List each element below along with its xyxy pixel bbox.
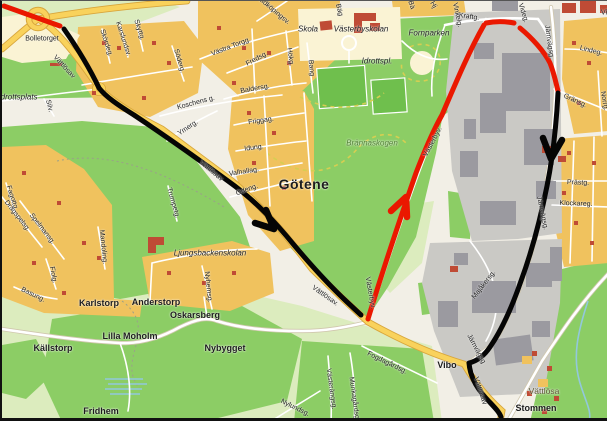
place-label-bolletorget: Bolletorget bbox=[25, 36, 58, 43]
street-label-nylundsg: Nylundsg. bbox=[279, 398, 310, 418]
street-label-vasterangsg: Västerängsg. bbox=[325, 368, 338, 410]
poi-label-ljungsbackenskolan: Ljungsbackenskolan bbox=[174, 249, 247, 258]
street-label-silv: Silv. bbox=[44, 99, 54, 113]
street-label-fredsg: Fredsg. bbox=[245, 50, 269, 67]
street-label-bang: Bang bbox=[307, 59, 316, 76]
place-label-karlstorp: Karlstorp bbox=[79, 298, 119, 308]
street-label-lidkopingsv: Lidköpingsv. bbox=[257, 0, 291, 26]
map-canvas[interactable]: Götene Bolletorget Karlstorp Anderstorp … bbox=[0, 0, 607, 421]
street-label-karslundsv: Karslundsv. bbox=[114, 21, 132, 57]
poi-label-idrottspl: Idrottspl. bbox=[362, 57, 393, 66]
street-label-idung: Idung. bbox=[244, 143, 264, 152]
street-label-basung: Basung. bbox=[20, 286, 46, 304]
place-label-gotene: Götene bbox=[279, 176, 330, 192]
poi-label-brannaskogen: Brännaskogen bbox=[346, 139, 398, 148]
street-label-vasterbyv-2: Västerbyv. bbox=[364, 276, 377, 309]
street-label-odeng: Odeng. bbox=[235, 183, 259, 197]
street-label-majakersg: Majåkersg. bbox=[471, 269, 498, 300]
place-label-fridhem: Fridhem bbox=[83, 406, 119, 416]
street-label-vattlosav-3: Vättlösav. bbox=[311, 284, 340, 307]
street-label-hokg: Hökg. bbox=[285, 47, 294, 66]
street-label-spelmansg: Spelmansg. bbox=[28, 212, 56, 245]
street-label-nyhemsg: Nyhemsg. bbox=[203, 271, 213, 303]
street-label-valhallag: Valhallag. bbox=[229, 166, 260, 178]
place-label-anderstorp: Anderstorp bbox=[132, 297, 181, 307]
poi-label-vasterbyskolan: Västerbyskolan bbox=[334, 25, 389, 34]
street-label-partial-bag: Bäg bbox=[334, 3, 344, 17]
place-label-lilla-moholm: Lilla Moholm bbox=[103, 331, 158, 341]
place-label-stommen: Stommen bbox=[515, 403, 556, 413]
street-label-friggag: Friggag. bbox=[248, 116, 274, 127]
street-label-vattlosav-2: Vättlösav bbox=[198, 159, 225, 183]
street-label-gransg: Gränsg. bbox=[562, 93, 588, 110]
street-label-norrg: Norrg. bbox=[599, 91, 607, 111]
street-label-jarnvagsg-2: Järnvägsg. bbox=[535, 196, 549, 231]
street-label-skordeg: Skördeg. bbox=[98, 29, 113, 58]
street-label-videg: Videg. bbox=[517, 3, 530, 24]
street-label-soderg: Söderg. bbox=[172, 48, 185, 74]
place-label-vattlosa: Vättlösa bbox=[529, 386, 560, 396]
street-label-prastg: Prästg. bbox=[567, 179, 589, 187]
street-label-jarnvagsg-1: Järnvägsg. bbox=[543, 25, 555, 60]
street-label-partial-ba: Bä bbox=[406, 0, 415, 10]
poi-label-skola: Skola bbox=[298, 25, 318, 34]
street-label-vasterbyv-1: Västerbyv. bbox=[422, 126, 443, 158]
place-label-vibo: Vibo bbox=[437, 360, 456, 370]
street-label-fiolg: Fiolg. bbox=[48, 266, 58, 284]
street-label-jarnvagsg-3: Järnvägsg bbox=[465, 333, 486, 365]
street-label-ymerg: Ymerg. bbox=[177, 119, 200, 137]
street-label-vattlosav-1: Vättlösav bbox=[52, 54, 77, 80]
street-label-koschens-g: Koschens g. bbox=[176, 95, 215, 112]
place-label-oskarsberg: Oskarsberg bbox=[170, 310, 220, 320]
street-label-partial-hj: Hj bbox=[428, 0, 437, 9]
street-label-klockareg: Klockareg. bbox=[559, 200, 592, 208]
poi-label-fornparken: Fornparken bbox=[409, 29, 450, 38]
street-label-lindeg: Lindeg. bbox=[579, 45, 603, 57]
street-label-munkagardsg: Munkagårdsg. bbox=[347, 377, 360, 421]
labels-layer: Götene Bolletorget Karlstorp Anderstorp … bbox=[2, 1, 607, 418]
street-label-trumpetg: Trumpetg. bbox=[165, 187, 180, 219]
street-label-partial-vi: Vi bbox=[601, 10, 607, 17]
street-label-baldersg: Baldersg. bbox=[240, 83, 270, 95]
street-label-vattlosav-4: Vättlösav bbox=[472, 376, 488, 406]
poi-label-idrottsplats: Idrottsplats bbox=[0, 93, 38, 102]
place-label-kallstorp: Källstorp bbox=[33, 343, 72, 353]
street-label-fogdagardsg: Fogdagårdsg. bbox=[366, 350, 408, 375]
street-label-vastra-torgg: Västra Torgg. bbox=[210, 36, 251, 57]
street-label-skyttg: Skyttg. bbox=[132, 19, 145, 42]
street-label-mandoling: Mandoling. bbox=[98, 230, 109, 265]
place-label-nybygget: Nybygget bbox=[204, 343, 245, 353]
